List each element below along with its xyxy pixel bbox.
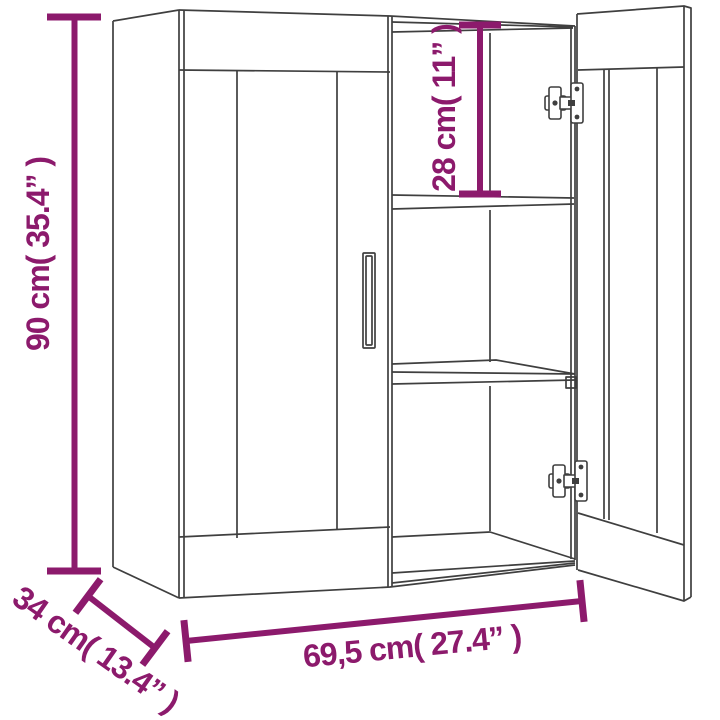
carcass-top-edge — [179, 10, 575, 26]
front-left-corner-edge — [179, 10, 184, 598]
left-door-right-edge — [388, 16, 392, 587]
cabinet-line-drawing — [0, 0, 720, 720]
right-door-stiles — [604, 68, 657, 533]
left-door-rails — [179, 70, 390, 537]
top-compartment-dimension-label: 28 cm( 11” ) — [428, 24, 460, 192]
hinge-bottom-icon — [549, 461, 587, 501]
door-handle — [363, 253, 375, 348]
right-door-outline — [577, 6, 691, 601]
left-door-panel-lines — [237, 70, 337, 538]
right-door-rails — [578, 67, 684, 545]
cabinet-carcass — [113, 10, 576, 598]
left-side-panel — [113, 10, 179, 598]
shelf-middle — [392, 360, 575, 384]
cabinet-left-door — [179, 16, 392, 587]
height-dimension-label: 90 cm( 35.4” ) — [22, 157, 54, 351]
product-dimension-diagram: 90 cm( 35.4” ) 28 cm( 11” ) 34 cm( 13.4”… — [0, 0, 720, 720]
hinge-top-icon — [545, 83, 583, 123]
dimension-lines — [47, 17, 584, 665]
cabinet-right-door — [577, 6, 691, 601]
